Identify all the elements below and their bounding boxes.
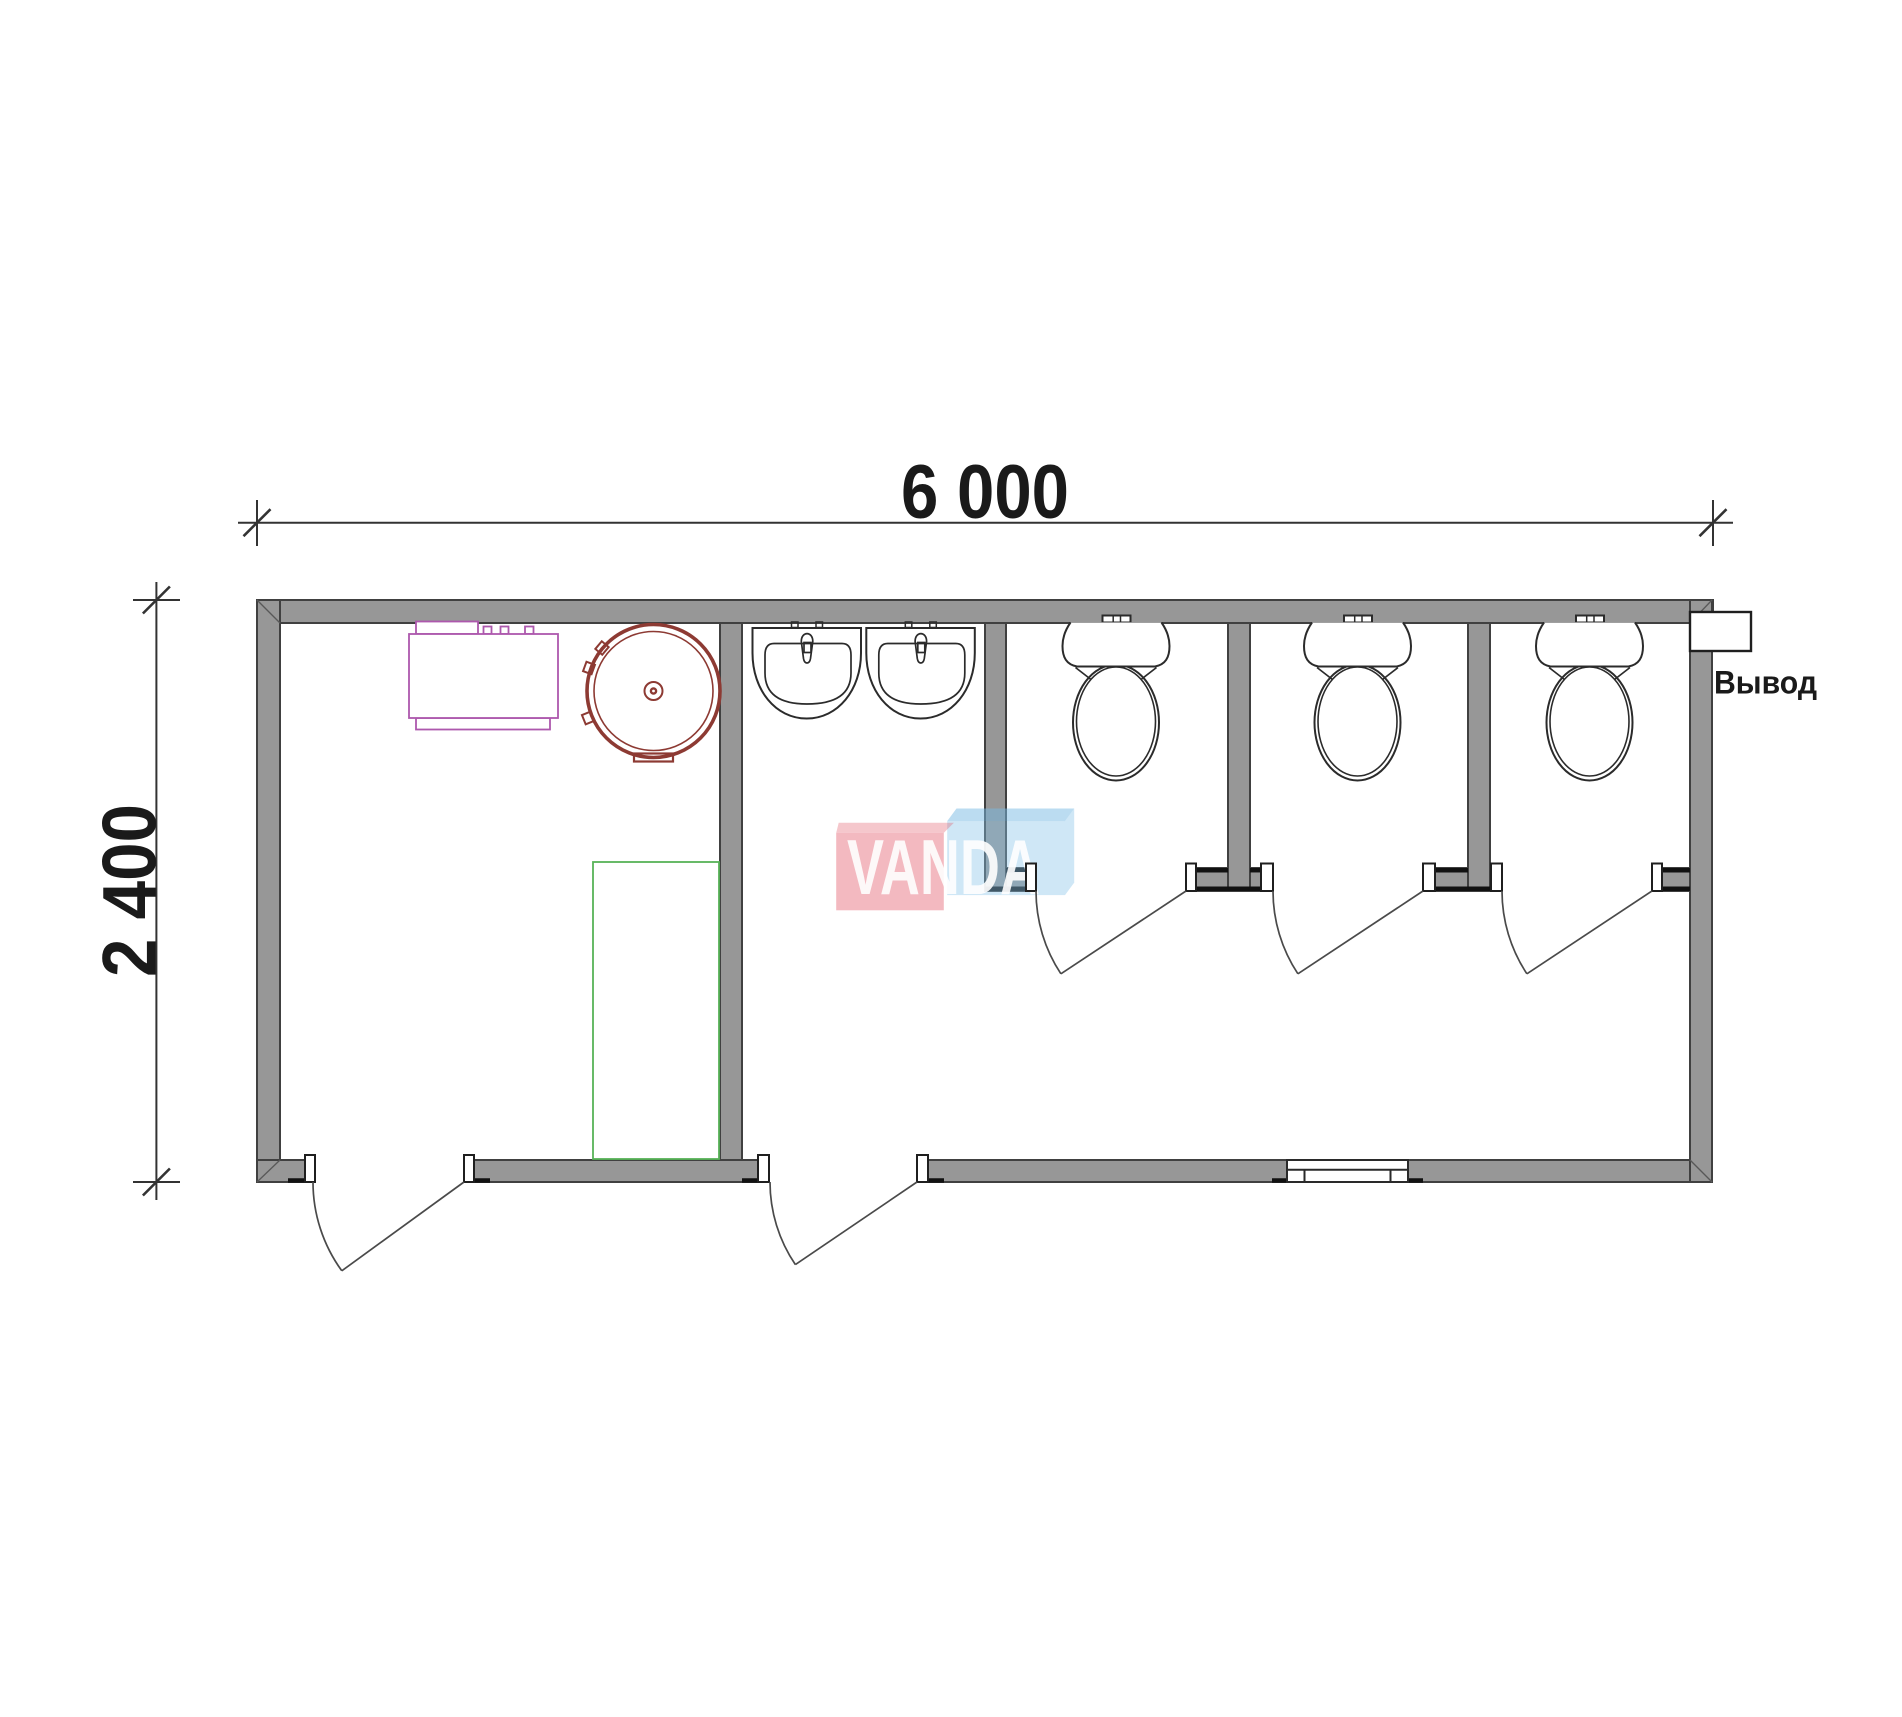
svg-text:VANDA: VANDA [847, 823, 1040, 911]
svg-text:2 400: 2 400 [88, 804, 173, 977]
svg-text:6 000: 6 000 [901, 450, 1069, 535]
svg-text:Вывод: Вывод [1714, 665, 1817, 701]
